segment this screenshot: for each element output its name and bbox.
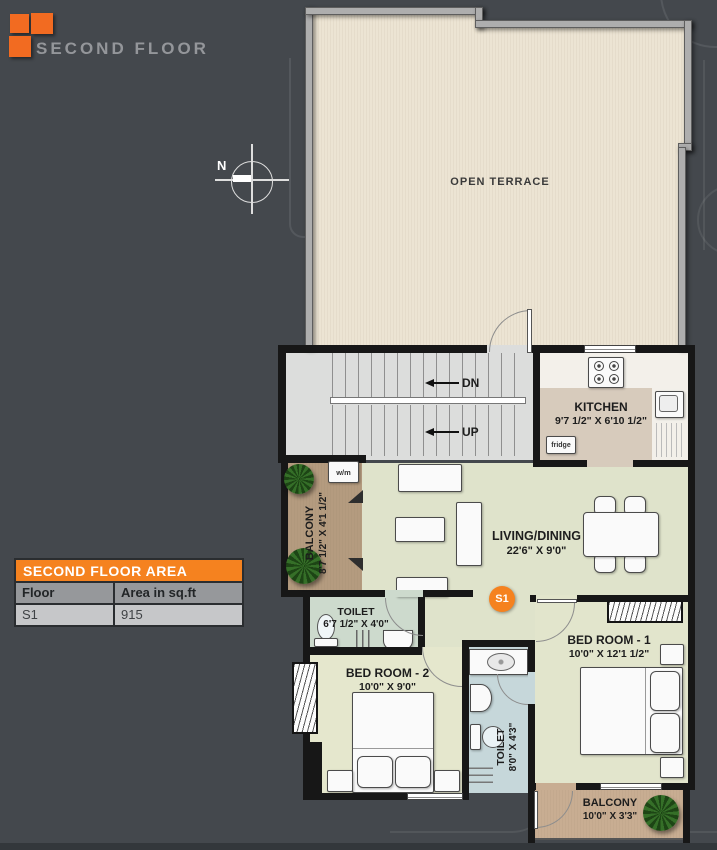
kitchen-dims: 9'7 1/2" X 6'10 1/2" <box>521 415 681 428</box>
wall-kitchen-bottom-right <box>633 460 695 467</box>
bedroom1-name: BED ROOM - 1 <box>528 633 690 648</box>
wall-kitchen-bottom-left <box>533 460 587 467</box>
wall-toilet-bottom-top <box>462 640 535 647</box>
bedroom2-bed-fold <box>353 748 433 749</box>
fridge: fridge <box>546 436 576 454</box>
living-dining-dims: 22'6" X 9'0" <box>444 545 629 559</box>
kitchen-label: KITCHEN 9'7 1/2" X 6'10 1/2" <box>521 400 681 428</box>
toilet-bottom-label: TOILET 8'0" X 4'3" <box>495 687 531 807</box>
balcony-bottom-door-leaf <box>534 791 538 829</box>
area-table-area-value: 915 <box>115 605 242 625</box>
burner-icon <box>609 361 619 371</box>
living-dining-name: LIVING/DINING <box>444 529 629 545</box>
terrace-wall-top-left <box>305 7 483 15</box>
bedroom2-nightstand <box>434 770 460 792</box>
burner-icon <box>594 361 604 371</box>
toilet-bottom-basin <box>470 684 492 712</box>
bedroom1-label: BED ROOM - 1 10'0" X 12'1 1/2" <box>528 633 690 661</box>
bedroom2-name: BED ROOM - 2 <box>310 666 465 681</box>
logo-square-top <box>31 13 53 34</box>
stair-dn-arrow-head <box>425 379 434 387</box>
area-table-columns-row: Floor Area in sq.ft <box>16 581 242 603</box>
kitchen-door-opening <box>587 460 633 467</box>
unit-badge-label: S1 <box>495 593 508 605</box>
area-table-col-floor: Floor <box>16 583 115 603</box>
balcony-bottom-dims: 10'0" X 3'3" <box>540 811 680 824</box>
stair-dn-label: DN <box>462 376 479 391</box>
bedroom1-pillow <box>650 671 680 711</box>
coffee-table <box>395 517 445 542</box>
fridge-label: fridge <box>551 442 570 449</box>
balcony-left-name: BALCONY <box>304 473 318 593</box>
toilet-top-dims: 6'7 1/2" X 4'0" <box>300 619 412 632</box>
site-circle-right <box>697 185 717 255</box>
terrace-door-leaf <box>527 309 532 353</box>
area-table-value-row: S1 915 <box>16 603 242 625</box>
balcony-bottom-label: BALCONY 10'0" X 3'3" <box>540 797 680 823</box>
stair-up-arrow-line <box>433 431 459 433</box>
stair-up-arrow-head <box>425 428 434 436</box>
bedroom1-nightstand <box>660 757 684 778</box>
toilet-top-wc-tank <box>314 638 338 647</box>
bedroom1-wardrobe <box>607 600 683 623</box>
burner-icon <box>609 374 619 384</box>
bedroom2-dims: 10'0" X 9'0" <box>310 681 465 694</box>
area-table-col-area: Area in sq.ft <box>115 583 242 603</box>
terrace-wall-right-lower <box>678 147 686 349</box>
balcony-left-label: BALCONY 8'7 1/2" X 4'1 1/2" <box>304 473 340 593</box>
stair-up-label: UP <box>462 425 479 440</box>
wall-stair-left <box>278 345 286 463</box>
kitchen-window <box>584 345 636 353</box>
balcony-bottom-door-opening <box>536 783 576 790</box>
toilet-bottom-counter-sink <box>487 653 515 671</box>
balcony-bottom-edge <box>535 838 683 840</box>
terrace-wall-right-upper <box>684 20 692 151</box>
sofa-top <box>398 464 462 492</box>
area-table-header: SECOND FLOOR AREA <box>16 560 242 581</box>
toilet-top-name: TOILET <box>300 606 412 619</box>
stair-steps-upper <box>332 353 522 397</box>
stove <box>588 357 624 388</box>
wall-balcony-bottom-right <box>683 790 690 843</box>
terrace-label: OPEN TERRACE <box>400 176 600 190</box>
wall-stub-lower <box>348 558 363 571</box>
compass-pointer <box>233 175 251 182</box>
logo-square-small <box>10 14 29 33</box>
wall-bedroom2-left-thick <box>303 742 322 800</box>
compass: N <box>205 140 295 220</box>
stair-dn-arrow-line <box>433 382 459 384</box>
balcony-left-dims: 8'7 1/2" X 4'1 1/2" <box>318 473 331 593</box>
area-table-title: SECOND FLOOR AREA <box>16 563 187 579</box>
bedroom1-bed-fold <box>645 668 646 754</box>
bedroom2-pillow <box>395 756 431 788</box>
toilet-bottom-name: TOILET <box>495 687 508 807</box>
toilet-bottom-dims: 8'0" X 4'3" <box>508 687 521 807</box>
toilet-bottom-shower <box>469 762 493 783</box>
bedroom2-pillow <box>357 756 393 788</box>
area-table: SECOND FLOOR AREA Floor Area in sq.ft S1… <box>14 558 244 627</box>
terrace-floor-notch <box>312 14 478 28</box>
toilet-top-label: TOILET 6'7 1/2" X 4'0" <box>300 606 412 632</box>
compass-north-label: N <box>217 158 226 173</box>
bedroom2-label: BED ROOM - 2 10'0" X 9'0" <box>310 666 465 694</box>
toilet-top-door-opening <box>385 590 423 597</box>
compass-hline <box>215 179 289 181</box>
burner-icon <box>594 374 604 384</box>
bedroom2-window <box>407 793 463 800</box>
toilet-bottom-wc-tank <box>470 724 481 750</box>
bedroom1-window <box>600 783 662 790</box>
bottom-edge-strip <box>0 843 717 850</box>
wall-right <box>688 345 695 790</box>
bedroom1-dims: 10'0" X 12'1 1/2" <box>528 648 690 661</box>
page-title: SECOND FLOOR <box>36 39 209 59</box>
floor-plan-canvas: SECOND FLOOR N OPEN TERRACE <box>0 0 717 850</box>
kitchen-name: KITCHEN <box>521 400 681 415</box>
stair-handrail <box>330 397 526 404</box>
bedroom1-pillow <box>650 713 680 753</box>
unit-badge: S1 <box>489 586 515 612</box>
area-table-floor-value: S1 <box>16 605 115 625</box>
balcony-bottom-name: BALCONY <box>540 797 680 811</box>
terrace-wall-left <box>305 7 313 349</box>
bedroom1-door-leaf <box>537 599 577 603</box>
logo-square-bottom <box>9 36 31 57</box>
wall-stub-upper <box>348 490 363 503</box>
living-dining-label: LIVING/DINING 22'6" X 9'0" <box>444 529 629 558</box>
bedroom2-nightstand <box>327 770 353 792</box>
terrace-wall-top-right <box>475 20 692 28</box>
